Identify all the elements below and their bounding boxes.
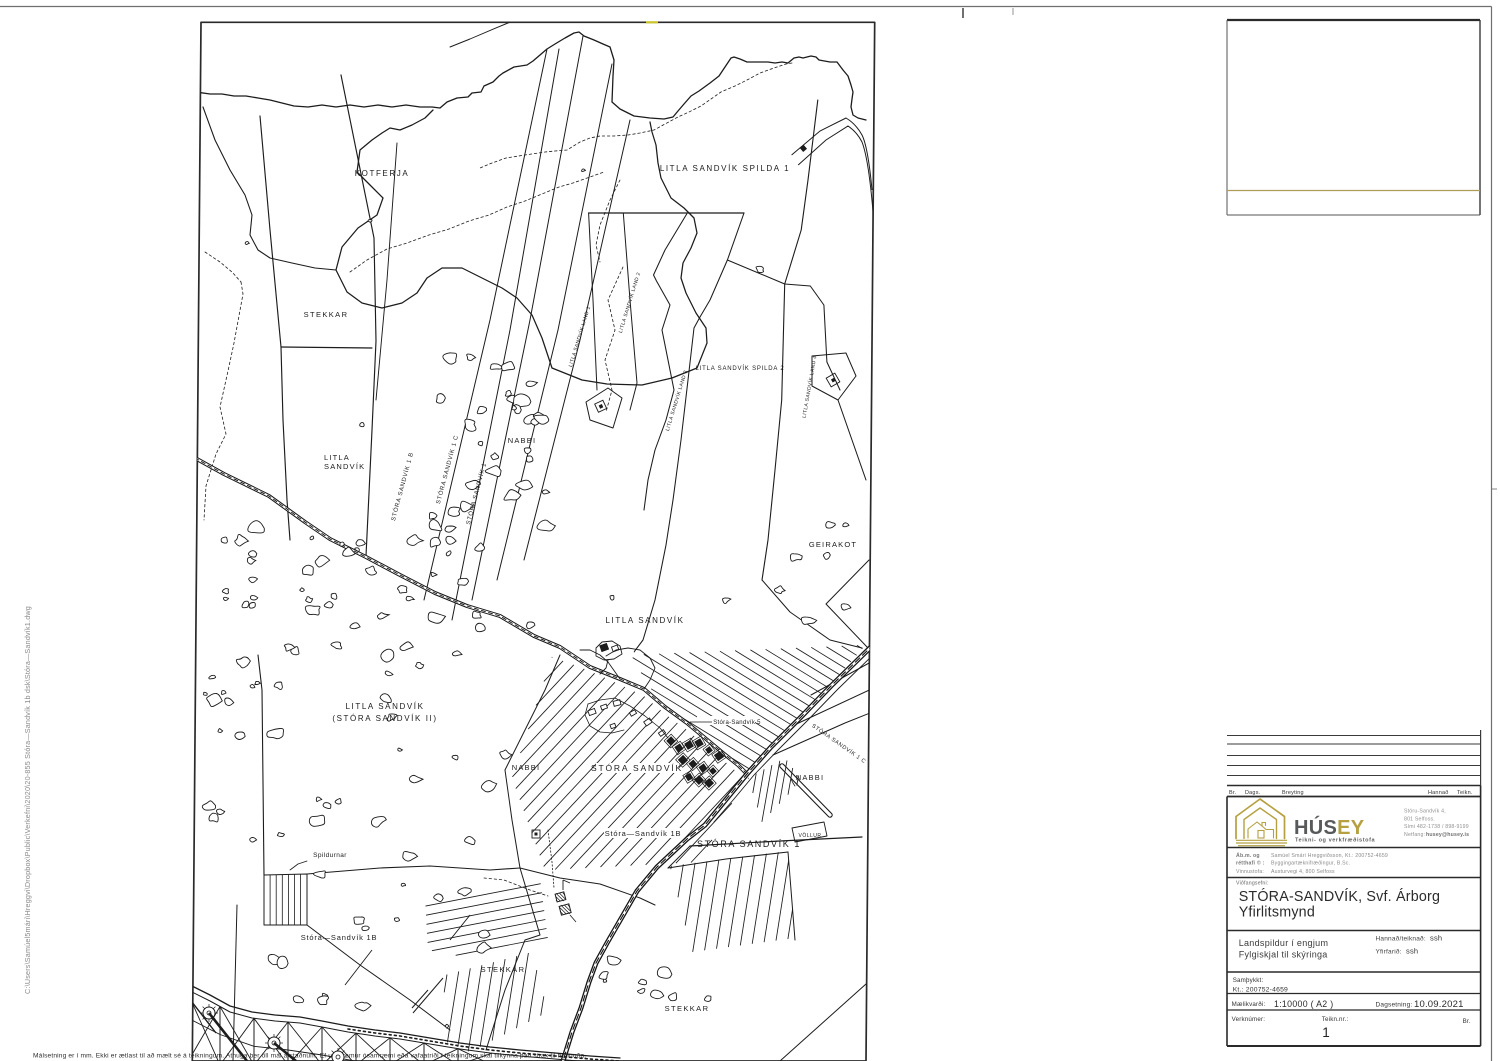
- svg-text:Kt.: 200752-4659: Kt.: 200752-4659: [1233, 987, 1288, 994]
- svg-text:VÖLLUR: VÖLLUR: [798, 832, 821, 839]
- svg-text:Stóra-Sandvík 5: Stóra-Sandvík 5: [713, 720, 761, 726]
- svg-text:Mælikvarði:: Mælikvarði:: [1232, 1001, 1266, 1008]
- svg-text:Yfirfarið:: Yfirfarið:: [1376, 948, 1402, 956]
- svg-text:10.09.2021: 10.09.2021: [1414, 999, 1464, 1010]
- svg-text:NABBI: NABBI: [796, 773, 825, 782]
- svg-text:Fylgiskjal til skýringa: Fylgiskjal til skýringa: [1239, 950, 1328, 960]
- svg-text:LITLA SANDVÍK: LITLA SANDVÍK: [605, 616, 684, 625]
- svg-text:Áb.m. og: Áb.m. og: [1236, 852, 1260, 859]
- svg-text:Austurvegi 4, 800 Selfoss: Austurvegi 4, 800 Selfoss: [1271, 869, 1335, 875]
- svg-text:STEKKAR: STEKKAR: [481, 965, 526, 974]
- svg-text:Netfang:: Netfang:: [1404, 832, 1425, 838]
- svg-text:SANDVÍK: SANDVÍK: [324, 462, 365, 471]
- svg-text:LITLA SANDVÍK SPILDA 2: LITLA SANDVÍK SPILDA 2: [696, 365, 785, 372]
- svg-text:(STÓRA SANDVÍK II): (STÓRA SANDVÍK II): [332, 714, 437, 723]
- svg-text:Hannað: Hannað: [1428, 789, 1448, 796]
- svg-text:Br.: Br.: [1463, 1018, 1471, 1025]
- svg-text:Samúel Smári Hreggviðsson, K: Samúel Smári Hreggviðsson, Kt.: 200752-4…: [1271, 852, 1388, 859]
- svg-text:STÓRA-SANDVÍK, Svf. Árborg: STÓRA-SANDVÍK, Svf. Árborg: [1239, 888, 1440, 905]
- svg-text:Hannað/teiknað:: Hannað/teiknað:: [1376, 935, 1426, 943]
- svg-text:1:10000 ( A2 ): 1:10000 ( A2 ): [1274, 999, 1333, 1009]
- svg-text:Verknúmer:: Verknúmer:: [1232, 1016, 1266, 1023]
- svg-text:Teikn.nr.:: Teikn.nr.:: [1322, 1016, 1349, 1023]
- svg-text:Teikn.: Teikn.: [1457, 790, 1473, 796]
- svg-text:NABBI: NABBI: [508, 436, 537, 445]
- svg-text:GEIRAKOT: GEIRAKOT: [809, 540, 857, 549]
- svg-text:Vinnustofa:: Vinnustofa:: [1236, 869, 1264, 875]
- svg-text:Breyting: Breyting: [1282, 790, 1304, 796]
- svg-text:STEKKAR: STEKKAR: [665, 1004, 710, 1013]
- svg-text:Yfirlitsmynd: Yfirlitsmynd: [1239, 905, 1315, 921]
- svg-text:husey@husey.is: husey@husey.is: [1426, 832, 1469, 838]
- svg-text:Landspildur í engjum: Landspildur í engjum: [1239, 938, 1329, 948]
- svg-text:rétthafi © :: rétthafi © :: [1236, 860, 1264, 867]
- svg-text:Sími 482-1738 / 898-9199: Sími 482-1738 / 898-9199: [1404, 824, 1469, 830]
- svg-text:HÚSEY: HÚSEY: [1294, 815, 1365, 839]
- svg-text:LITLA SANDVÍK SPILDA 1: LITLA SANDVÍK SPILDA 1: [660, 164, 790, 173]
- svg-text:LITLA: LITLA: [324, 453, 350, 462]
- svg-text:Samþykkt:: Samþykkt:: [1233, 977, 1264, 984]
- svg-text:Stóra—Sandvík 1B: Stóra—Sandvík 1B: [605, 829, 682, 838]
- svg-text:NABBI: NABBI: [512, 763, 541, 772]
- svg-text:801 Selfoss.: 801 Selfoss.: [1404, 816, 1435, 822]
- svg-text:Málsetning er í mm. Ekki er æt: Málsetning er í mm. Ekki er ætlast til a…: [33, 1052, 586, 1060]
- svg-text:ssh: ssh: [1430, 934, 1442, 943]
- svg-text:STÓRA SANDVÍK: STÓRA SANDVÍK: [591, 763, 683, 773]
- svg-text:KOTFERJA: KOTFERJA: [355, 169, 410, 178]
- svg-text:Byggingartæknifræðingur, B.Sc.: Byggingartæknifræðingur, B.Sc.: [1271, 860, 1350, 867]
- svg-text:Dagsetning:: Dagsetning:: [1376, 1002, 1413, 1009]
- svg-text:Teikni- og verkfræðistofa: Teikni- og verkfræðistofa: [1295, 837, 1376, 844]
- svg-text:ssh: ssh: [1406, 947, 1418, 956]
- svg-text:Spildurnar: Spildurnar: [313, 852, 347, 859]
- svg-text:Stóra—Sandvík 1B: Stóra—Sandvík 1B: [301, 933, 378, 942]
- svg-text:STÓRA SANDVÍK 1: STÓRA SANDVÍK 1: [697, 839, 801, 849]
- svg-text:Br.: Br.: [1229, 790, 1237, 796]
- svg-text:Stóru-Sandvík 4,: Stóru-Sandvík 4,: [1404, 809, 1446, 815]
- svg-text:STEKKAR: STEKKAR: [304, 310, 349, 319]
- svg-text:1: 1: [1322, 1025, 1330, 1040]
- svg-text:C:\Users\Samúel5mári\Hreggvi\D: C:\Users\Samúel5mári\Hreggvi\Dropbox\Pub…: [23, 606, 32, 994]
- svg-text:Dags.: Dags.: [1245, 790, 1261, 796]
- svg-text:Viðfangsefni:: Viðfangsefni:: [1236, 880, 1269, 887]
- svg-text:LITLA SANDVÍK: LITLA SANDVÍK: [345, 702, 424, 711]
